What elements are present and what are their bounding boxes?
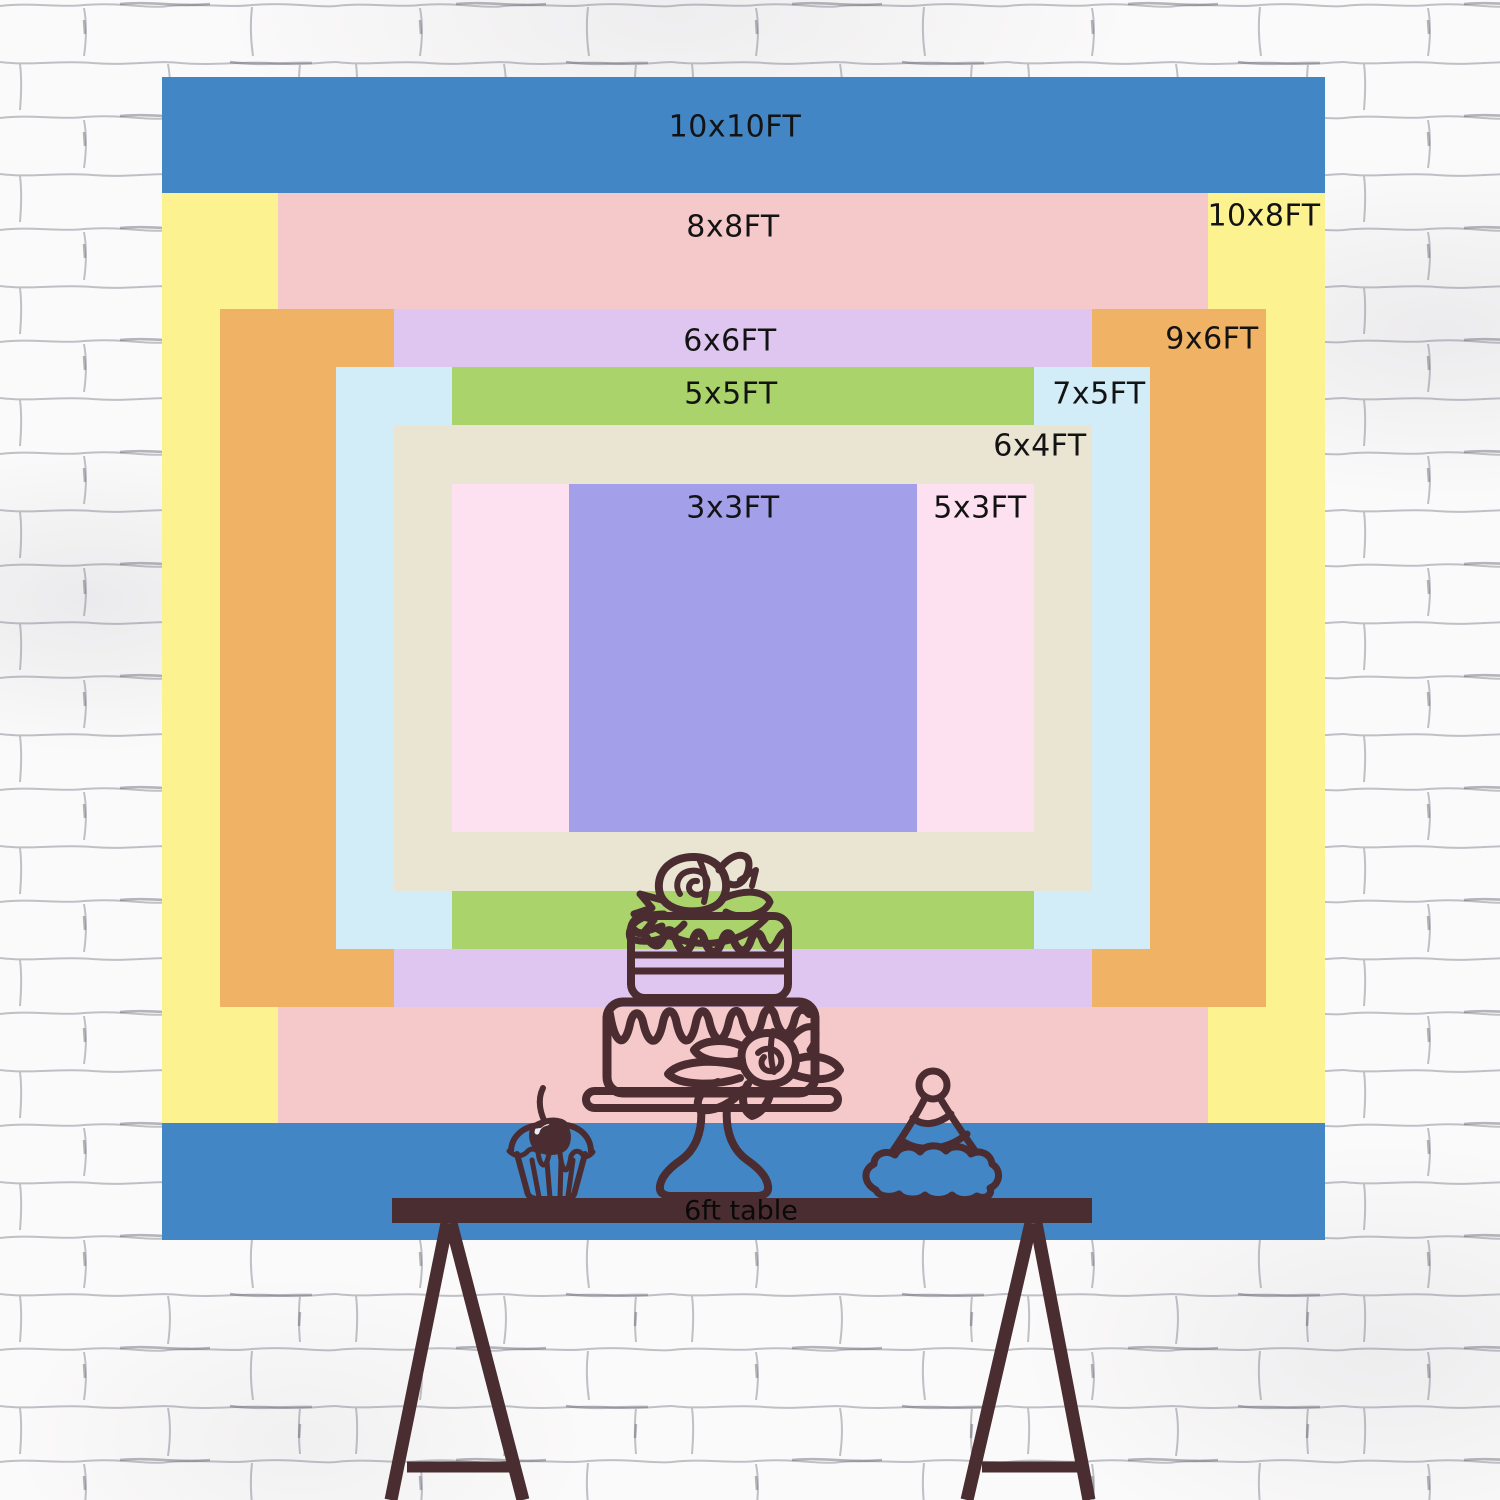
trestle-table	[391, 1198, 1092, 1500]
backdrop-size-chart-infographic: 10x10FT10x8FT8x8FT9x6FT6x6FT7x5FT5x5FT6x…	[0, 0, 1500, 1500]
party-illustration	[0, 0, 1500, 1500]
hat-scalloped-band	[866, 1146, 999, 1200]
cake-stand-plate	[586, 1091, 838, 1108]
party-hat-illustration	[866, 1071, 999, 1200]
table-size-label: 6ft table	[684, 1196, 798, 1227]
cake-stand-stem	[660, 1108, 768, 1196]
table-legs	[391, 1223, 1089, 1500]
cupcake-illustration	[509, 1088, 593, 1199]
right-leaf	[724, 892, 770, 916]
tiered-cake-illustration	[586, 855, 840, 1196]
hat-pompom	[919, 1071, 947, 1099]
